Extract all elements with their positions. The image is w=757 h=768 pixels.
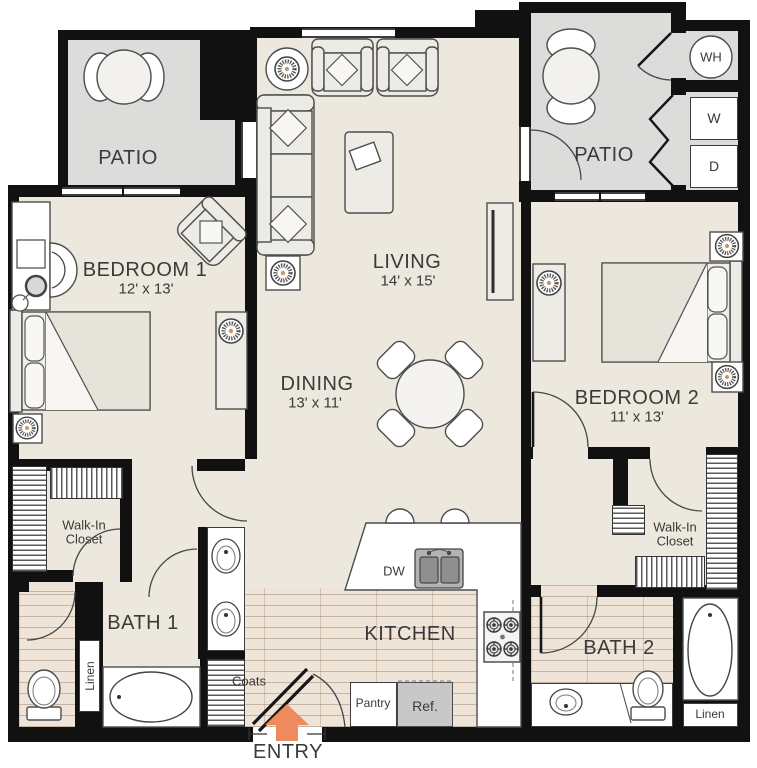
window-bedroom1-a <box>62 187 122 196</box>
label-bedroom1: BEDROOM 1 <box>83 260 208 280</box>
label-living-dims: 14' x 15' <box>381 274 436 289</box>
label-ref: Ref. <box>412 699 438 713</box>
label-patio-left: PATIO <box>98 148 158 168</box>
label-dw: DW <box>383 565 405 578</box>
label-walkin1-line1: Walk-In <box>62 519 106 532</box>
label-walkin2-line1: Walk-In <box>653 521 697 534</box>
label-walkin2-line2: Closet <box>657 535 694 548</box>
window-bedroom2-b <box>601 192 645 201</box>
label-patio-right: PATIO <box>574 145 634 165</box>
label-bedroom2-dims: 11' x 13' <box>610 410 664 425</box>
label-coats: Coats <box>232 675 266 688</box>
slider-patio-right <box>519 127 531 181</box>
label-walkin1-line2: Closet <box>66 533 103 546</box>
floor-plan: PATIO PATIO LIVING 14' x 15' DINING 13' … <box>0 0 757 768</box>
window-bedroom1-b <box>124 187 180 196</box>
door-gap-closet2 <box>650 447 706 459</box>
door-gap-bedroom2 <box>533 447 588 459</box>
vanity-bath1 <box>207 527 245 651</box>
entry-threshold <box>253 727 322 742</box>
label-linen2: Linen <box>695 708 724 720</box>
floor-toilet-room <box>19 590 75 727</box>
coats-rod <box>207 659 245 727</box>
window-living <box>302 28 395 38</box>
door-gap-toilet-room <box>29 582 75 592</box>
label-dryer: D <box>709 159 719 173</box>
door-gap-bath2 <box>541 585 597 597</box>
closet1-rod-left <box>12 466 47 572</box>
label-linen1: Linen <box>84 661 96 690</box>
closet1-rod-top <box>50 467 123 499</box>
vanity-bath2 <box>531 683 673 727</box>
door-gap-bedroom1 <box>132 459 197 471</box>
label-bedroom1-dims: 12' x 13' <box>119 282 174 297</box>
closet2-rod-right <box>706 454 738 590</box>
label-entry: ENTRY <box>253 742 323 762</box>
slider-patio-left <box>241 122 258 178</box>
closet2-rod-small <box>612 505 645 535</box>
label-dining-dims: 13' x 11' <box>288 396 342 411</box>
label-dining: DINING <box>281 374 354 394</box>
label-washer: W <box>707 111 720 125</box>
closet2-rod-bottom <box>635 556 705 588</box>
label-bedroom2: BEDROOM 2 <box>575 388 700 408</box>
door-gap-wh <box>671 33 686 78</box>
window-bedroom2-a <box>555 192 599 201</box>
door-gap-wd <box>671 95 686 185</box>
label-pantry: Pantry <box>356 697 391 709</box>
label-bath1: BATH 1 <box>107 613 179 633</box>
label-bath2: BATH 2 <box>583 638 655 658</box>
label-kitchen: KITCHEN <box>364 624 455 644</box>
label-living: LIVING <box>373 252 442 272</box>
label-wh: WH <box>700 51 722 64</box>
